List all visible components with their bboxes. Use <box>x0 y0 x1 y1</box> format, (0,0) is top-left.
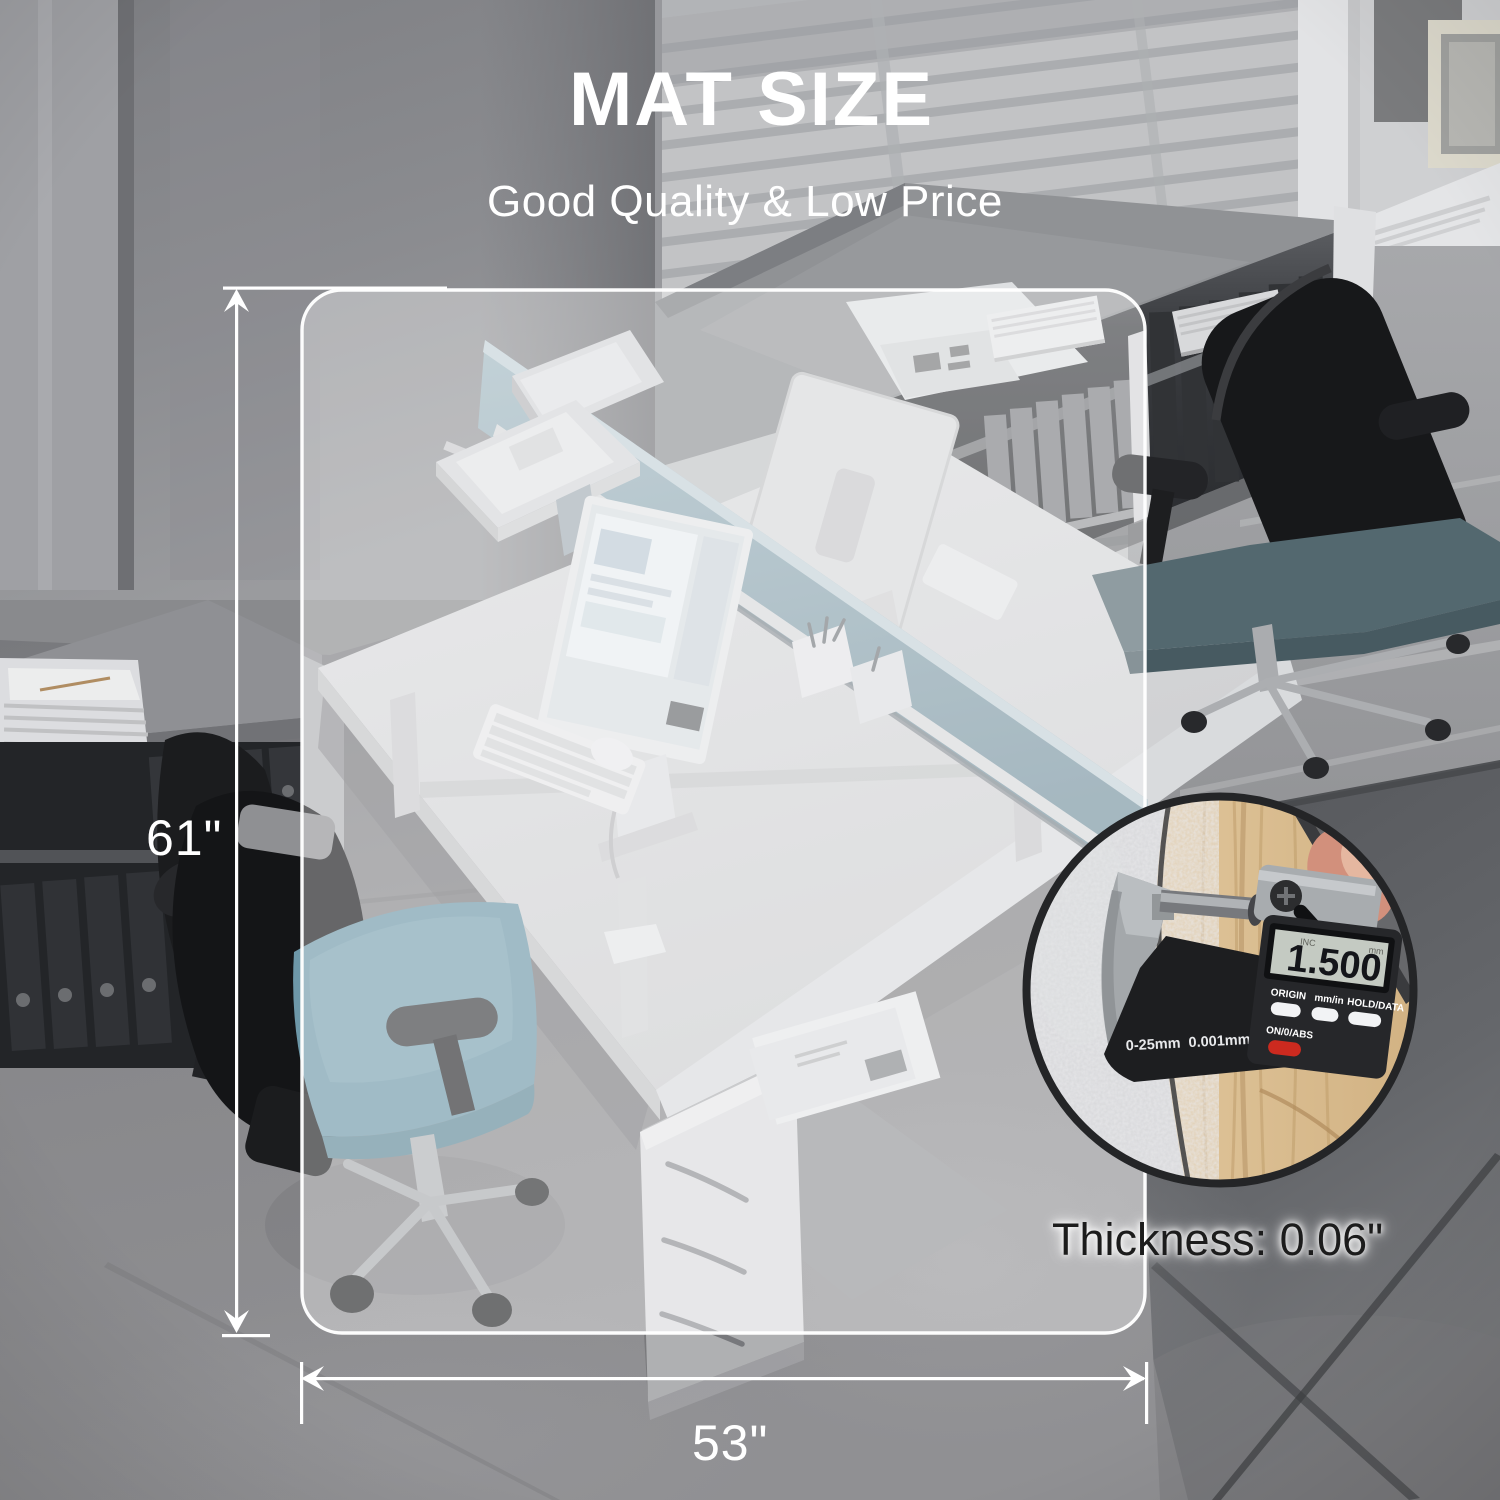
svg-text:53": 53" <box>692 1415 768 1471</box>
svg-text:mm: mm <box>1368 945 1384 957</box>
svg-text:Good Quality & Low Price: Good Quality & Low Price <box>487 177 1003 226</box>
svg-text:INC: INC <box>1300 936 1317 948</box>
svg-text:61": 61" <box>146 810 222 866</box>
svg-text:Thickness: 0.06": Thickness: 0.06" <box>1052 1214 1383 1265</box>
svg-text:MAT SIZE: MAT SIZE <box>569 57 934 142</box>
